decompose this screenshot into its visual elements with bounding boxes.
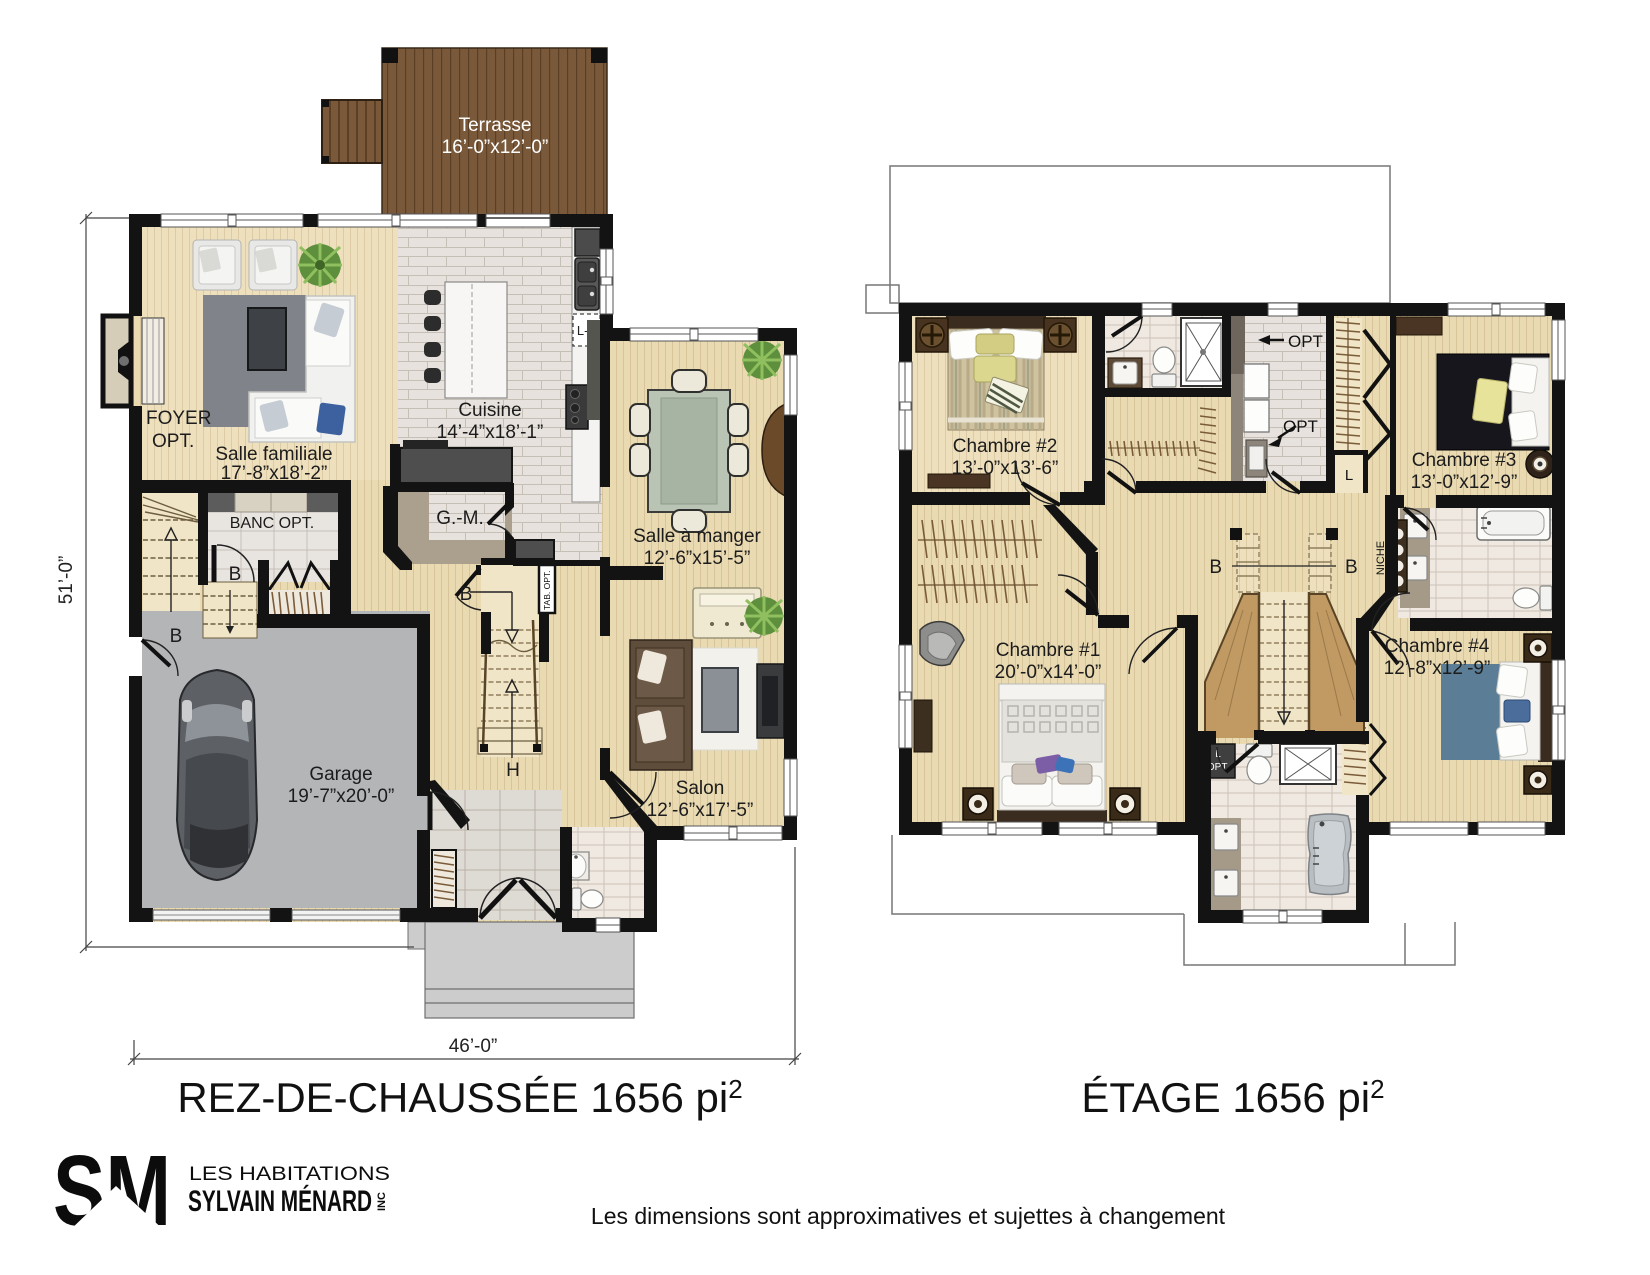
svg-text:ÉTAGE 1656 pi2: ÉTAGE 1656 pi2 [1081, 1074, 1384, 1121]
svg-text:Cuisine: Cuisine [458, 400, 521, 421]
svg-text:G.-M.: G.-M. [436, 508, 484, 529]
svg-text:Salle à manger: Salle à manger [633, 526, 761, 547]
svg-text:B: B [170, 626, 183, 647]
svg-text:INC: INC [376, 1192, 388, 1211]
svg-text:SYLVAIN MÉNARD: SYLVAIN MÉNARD [188, 1184, 372, 1218]
svg-text:OPT.: OPT. [152, 431, 194, 452]
svg-text:B: B [1209, 557, 1222, 578]
svg-text:12’-8”x12’-9”: 12’-8”x12’-9” [1384, 658, 1491, 679]
svg-text:Chambre #2: Chambre #2 [953, 436, 1058, 457]
svg-text:Salle familiale: Salle familiale [215, 444, 332, 465]
svg-text:13’-0”x13’-6”: 13’-0”x13’-6” [952, 458, 1059, 479]
svg-text:17’-8”x18’-2”: 17’-8”x18’-2” [221, 463, 328, 484]
svg-text:Chambre #1: Chambre #1 [996, 640, 1101, 661]
svg-text:Chambre #3: Chambre #3 [1412, 450, 1517, 471]
svg-text:51’-0”: 51’-0” [56, 556, 77, 605]
svg-text:Chambre #4: Chambre #4 [1385, 636, 1490, 657]
svg-text:Les dimensions sont approximat: Les dimensions sont approximatives et su… [591, 1203, 1226, 1229]
svg-text:14’-4”x18’-1”: 14’-4”x18’-1” [437, 422, 544, 443]
svg-text:20’-0”x14’-0”: 20’-0”x14’-0” [995, 662, 1102, 683]
svg-text:19’-7”x20’-0”: 19’-7”x20’-0” [288, 786, 395, 807]
svg-text:BANC OPT.: BANC OPT. [230, 515, 314, 532]
svg-text:B: B [460, 584, 473, 605]
svg-text:46’-0”: 46’-0” [449, 1036, 498, 1057]
svg-text:Terrasse: Terrasse [459, 115, 532, 136]
svg-text:REZ-DE-CHAUSSÉE 1656 pi2: REZ-DE-CHAUSSÉE 1656 pi2 [177, 1074, 742, 1121]
svg-text:OPT: OPT [1288, 332, 1323, 351]
svg-text:LES HABITATIONS: LES HABITATIONS [189, 1164, 390, 1185]
svg-text:TAB. OPT.: TAB. OPT. [542, 570, 552, 610]
svg-text:Salon: Salon [676, 778, 725, 799]
svg-text:H: H [506, 760, 520, 781]
svg-text:FOYER: FOYER [146, 408, 211, 429]
svg-text:B: B [229, 564, 242, 585]
svg-text:OPT: OPT [1283, 417, 1318, 436]
svg-text:12’-6”x17’-5”: 12’-6”x17’-5” [647, 800, 754, 821]
svg-text:12’-6”x15’-5”: 12’-6”x15’-5” [644, 548, 751, 569]
svg-text:Garage: Garage [309, 764, 372, 785]
svg-text:13’-0”x12’-9”: 13’-0”x12’-9” [1411, 472, 1518, 493]
svg-text:L: L [1345, 467, 1353, 484]
svg-text:16’-0”x12’-0”: 16’-0”x12’-0” [442, 137, 549, 158]
svg-text:B: B [1345, 557, 1358, 578]
